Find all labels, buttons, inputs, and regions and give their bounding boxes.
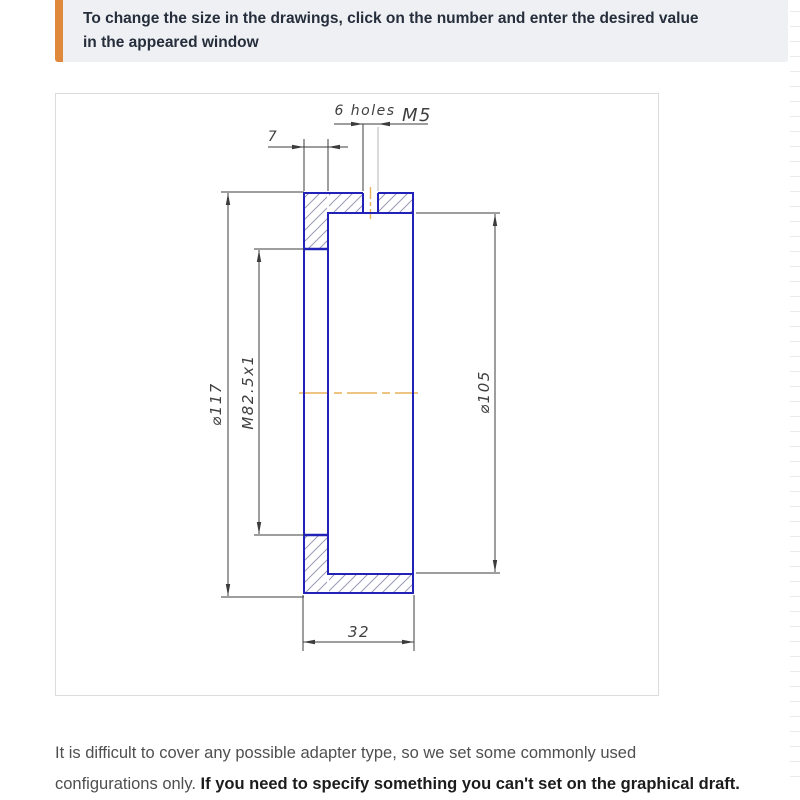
dim-flange-thickness[interactable]: 7 xyxy=(268,129,278,145)
adapter-section-drawing: 6 holes M5 7 ⌀117 M82.5x1 ⌀105 32 xyxy=(56,94,658,695)
right-edge-ticks xyxy=(790,4,800,791)
dim-holes-thread[interactable]: M5 xyxy=(402,105,432,126)
dim-holes-count[interactable]: 6 holes xyxy=(334,103,395,119)
dim-bore-diameter[interactable]: ⌀105 xyxy=(475,370,493,414)
description-bold-note: If you need to specify something you can… xyxy=(201,775,740,793)
note-callout: To change the size in the drawings, clic… xyxy=(55,0,788,62)
dim-outer-diameter[interactable]: ⌀117 xyxy=(207,382,225,426)
description-line-1: It is difficult to cover any possible ad… xyxy=(55,738,800,769)
drawing-panel: 6 holes M5 7 ⌀117 M82.5x1 ⌀105 32 xyxy=(55,93,659,696)
note-line-1: To change the size in the drawings, clic… xyxy=(83,7,768,31)
description-line-2: configurations only. If you need to spec… xyxy=(55,769,800,800)
note-line-2: in the appeared window xyxy=(83,31,768,55)
dim-total-width[interactable]: 32 xyxy=(348,623,370,641)
note-text: To change the size in the drawings, clic… xyxy=(63,0,788,55)
dim-thread-spec[interactable]: M82.5x1 xyxy=(239,354,257,429)
dimension-labels: 6 holes M5 7 ⌀117 M82.5x1 ⌀105 32 xyxy=(207,103,493,641)
